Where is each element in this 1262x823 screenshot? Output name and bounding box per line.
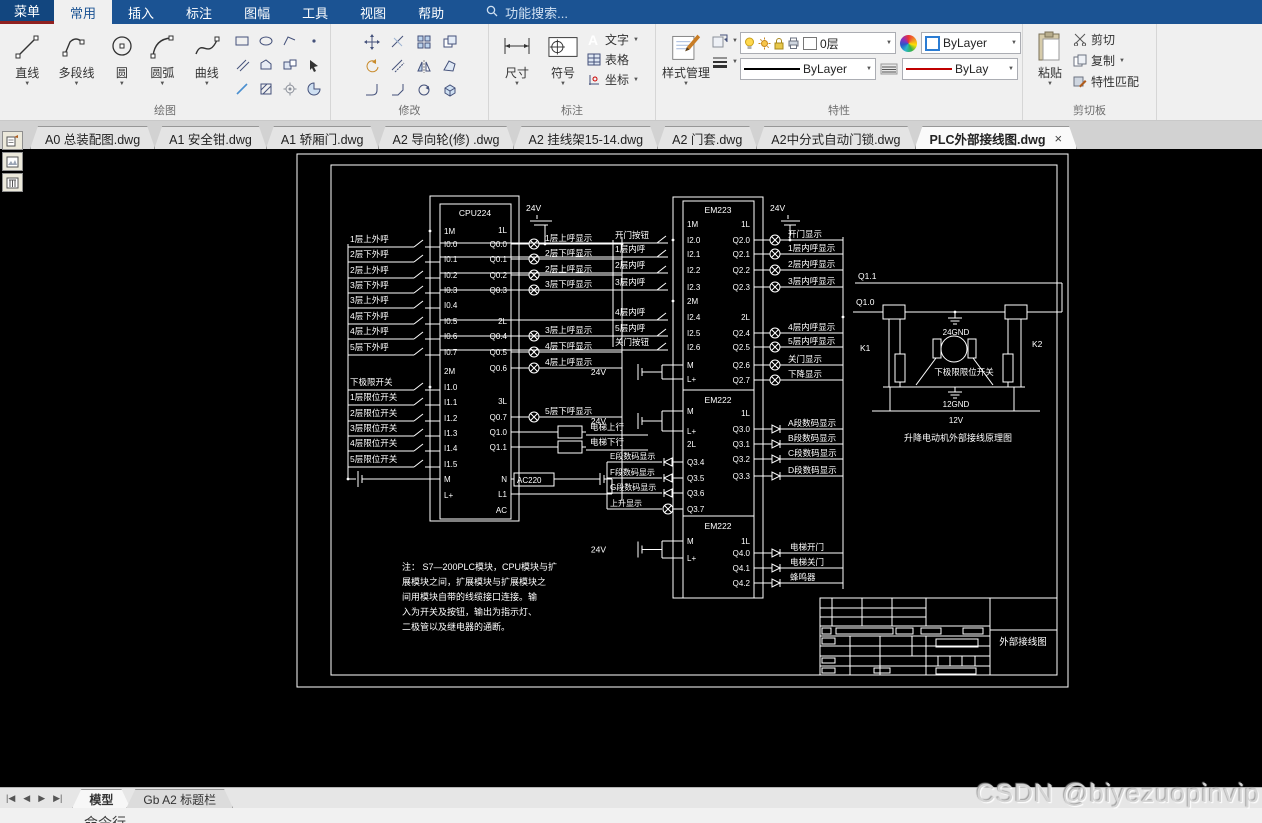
- layout-tab-bar: |◀ ◀ ▶ ▶| 模型Gb A2 标题栏: [0, 787, 1262, 808]
- chevron-down-icon: ▼: [732, 38, 738, 44]
- lock-icon: [774, 37, 784, 50]
- em-pin: 1L: [741, 537, 750, 546]
- paste-special-icon: [712, 34, 728, 48]
- layout-tab-0[interactable]: 模型: [72, 789, 130, 808]
- cpu-pin: I1.1: [444, 398, 458, 407]
- em-pin: Q2.3: [733, 283, 751, 292]
- linetype-select[interactable]: ByLayer ▼: [740, 58, 876, 80]
- motor-net-label: Q1.0: [856, 297, 875, 307]
- search-icon: [486, 5, 498, 20]
- output-label: 开门显示: [788, 229, 822, 239]
- draw-extra-tools: [230, 29, 326, 101]
- input-label: 4层内呼: [615, 307, 646, 317]
- cpu-block: [440, 204, 511, 519]
- copy-button[interactable]: 复制 ▼: [1073, 52, 1139, 69]
- em-pin: Q3.7: [687, 505, 705, 514]
- wire: [916, 358, 936, 385]
- junction-dot: [621, 243, 624, 246]
- input-label: 2层限位开关: [350, 408, 398, 418]
- ribbon-group-clipboard: 粘贴 ▼ 剪切 复制 ▼ 特性匹配: [1023, 24, 1157, 120]
- lineweight-preview: [906, 68, 952, 70]
- output-label: 5层下呼显示: [545, 406, 592, 416]
- tool-label: 特性匹配: [1091, 73, 1139, 90]
- box: [822, 668, 835, 673]
- chamfer-icon[interactable]: [389, 81, 407, 99]
- supply-label: 24V: [526, 203, 541, 213]
- output-label: G段数码显示: [610, 482, 656, 492]
- supply-label: 24V: [770, 203, 785, 213]
- symbol-icon: .1: [548, 30, 578, 64]
- command-line-label: 命令行: [84, 813, 126, 823]
- doc-tab-4[interactable]: A2 挂线架15-14.dwg: [513, 126, 658, 149]
- rotate-icon[interactable]: [363, 57, 381, 75]
- switch-icon: [414, 398, 423, 405]
- junction-dot: [429, 230, 432, 233]
- scissors-icon: [1073, 33, 1087, 46]
- diode-icon: [664, 474, 672, 482]
- color-value: ByLayer: [943, 36, 987, 50]
- layout-tab-1[interactable]: Gb A2 标题栏: [126, 789, 233, 808]
- pie-icon[interactable]: [305, 80, 323, 98]
- cpu-pin: I0.5: [444, 317, 458, 326]
- supply-label: 12V: [949, 416, 964, 425]
- block-icon[interactable]: [281, 56, 299, 74]
- sun-icon: [758, 37, 771, 50]
- filter-panel-icon[interactable]: [2, 173, 23, 192]
- output-label: 3层内呼显示: [788, 276, 835, 286]
- output-label: 上升显示: [610, 499, 642, 508]
- coordinate-tool[interactable]: 坐标 ▼: [587, 71, 639, 88]
- box: [822, 658, 835, 663]
- cpu-pin: M: [444, 475, 451, 484]
- chevron-down-icon: ▼: [73, 81, 79, 87]
- supply-label: 24V: [591, 545, 606, 555]
- drawing-canvas[interactable]: CPU2241MI0.0I0.1I0.2I0.3I0.4I0.5I0.6I0.7…: [0, 149, 1262, 787]
- cpu-pin: 2M: [444, 367, 455, 376]
- diode-icon: [772, 455, 780, 463]
- chevron-down-icon: ▼: [866, 66, 872, 72]
- chevron-down-icon: ▼: [633, 77, 639, 83]
- first-layout-icon[interactable]: |◀: [6, 793, 15, 804]
- trim-icon[interactable]: [389, 33, 407, 51]
- rectangle-icon[interactable]: [233, 32, 251, 50]
- doc-tab-3[interactable]: A2 导向轮(修) .dwg: [378, 126, 515, 149]
- em-pin: 2L: [687, 440, 696, 449]
- close-icon[interactable]: ×: [1054, 131, 1062, 146]
- switch-icon: [414, 271, 423, 278]
- group-label-properties: 特性: [656, 104, 1022, 120]
- layout-nav-arrows: |◀ ◀ ▶ ▶|: [6, 793, 62, 804]
- output-label: 电梯开门: [790, 542, 824, 552]
- cpu-pin: L1: [498, 490, 507, 499]
- layer-color-swatch: [803, 37, 817, 50]
- ribbon-spacer: [1157, 24, 1262, 120]
- cut-button[interactable]: 剪切: [1073, 31, 1139, 48]
- output-label: 3层下呼显示: [545, 279, 592, 289]
- box-3d-icon[interactable]: [441, 81, 459, 99]
- menu-item-2[interactable]: 插入: [112, 0, 170, 24]
- arc-tool-button[interactable]: 圆弧 ▼: [141, 28, 183, 87]
- tool-label: 样式管理: [662, 64, 710, 81]
- cpu-pin: I1.0: [444, 383, 458, 392]
- cpu-pin: I0.2: [444, 271, 458, 280]
- note-line: 入为开关及按钮，输出为指示灯、: [402, 606, 537, 617]
- color-select[interactable]: ByLayer ▼: [921, 32, 1021, 54]
- array-icon[interactable]: [415, 33, 433, 51]
- em222b-title: EM222: [705, 521, 732, 531]
- input-label: 2层下外呼: [350, 249, 389, 259]
- tool-label: 符号: [551, 64, 575, 81]
- em-pin: Q2.2: [733, 266, 751, 275]
- diode-icon: [772, 549, 780, 557]
- plc-wiring-schematic: CPU2241MI0.0I0.1I0.2I0.3I0.4I0.5I0.6I0.7…: [0, 149, 1262, 787]
- polyline-tool-button[interactable]: 多段线 ▼: [50, 28, 102, 87]
- doc-tab-6[interactable]: A2中分式自动门锁.dwg: [756, 126, 915, 149]
- relay-label: K2: [1032, 339, 1043, 349]
- switch-icon: [657, 283, 666, 290]
- chevron-down-icon: ▼: [514, 81, 520, 87]
- output-label: D段数码显示: [788, 465, 837, 475]
- chevron-down-icon: ▼: [1008, 66, 1014, 72]
- relay-coil: [558, 441, 582, 453]
- output-label: 1层上呼显示: [545, 233, 592, 243]
- polygon-icon[interactable]: [281, 32, 299, 50]
- input-label: 2层上外呼: [350, 265, 389, 275]
- doc-tab-5[interactable]: A2 门套.dwg: [657, 126, 757, 149]
- hatch-lines-icon[interactable]: [880, 62, 898, 76]
- chevron-down-icon: ▼: [159, 81, 165, 87]
- chevron-down-icon: ▼: [204, 81, 210, 87]
- gear-icon[interactable]: [281, 80, 299, 98]
- output-label: 下降显示: [788, 369, 822, 379]
- diode-icon: [772, 425, 780, 433]
- em-pin: I2.5: [687, 329, 701, 338]
- junction-dot: [672, 300, 675, 303]
- chevron-down-icon: ▼: [119, 81, 125, 87]
- cpu-pin: I0.4: [444, 301, 458, 310]
- em-pin: Q2.1: [733, 250, 751, 259]
- input-label: 5层内呼: [615, 323, 646, 333]
- ac-label: AC220: [517, 476, 542, 485]
- diode-icon: [664, 458, 672, 466]
- mirror-icon[interactable]: [415, 57, 433, 75]
- lineweight-select[interactable]: ByLay ▼: [902, 58, 1018, 80]
- dimension-icon: [502, 30, 532, 64]
- cpu-pin: I1.3: [444, 429, 458, 438]
- input-label: 3层下外呼: [350, 280, 389, 290]
- em-pin: Q2.6: [733, 361, 751, 370]
- circle-icon: [107, 30, 137, 64]
- menu-item-6[interactable]: 视图: [344, 0, 402, 24]
- chevron-down-icon: ▼: [886, 40, 892, 46]
- switch-icon: [657, 266, 666, 273]
- em-pin: Q3.1: [733, 440, 751, 449]
- switch-icon: [414, 429, 423, 436]
- switch-icon: [657, 250, 666, 257]
- side-panel-icons: [2, 131, 23, 192]
- symbol-button[interactable]: .1 符号 ▼: [541, 28, 585, 87]
- group-label-modify: 修改: [331, 104, 488, 120]
- stretch-icon[interactable]: [441, 57, 459, 75]
- relay-coil: [558, 426, 582, 438]
- em-pin: Q4.0: [733, 549, 751, 558]
- svg-text:A: A: [588, 33, 598, 46]
- clipboard-icon: [1035, 30, 1065, 64]
- tool-label: 直线: [15, 64, 39, 81]
- doc-tab-1[interactable]: A1 安全钳.dwg: [154, 126, 267, 149]
- style-manager-icon: [671, 30, 701, 64]
- diode-icon: [772, 564, 780, 572]
- insert-attrib-button[interactable]: ▼: [712, 34, 738, 48]
- input-label: 1层限位开关: [350, 392, 398, 402]
- diode-icon: [772, 579, 780, 587]
- em-pin: Q3.5: [687, 474, 705, 483]
- output-label: E段数码显示: [610, 451, 655, 461]
- tool-label: 剪切: [1091, 31, 1115, 48]
- input-label: 3层内呼: [615, 277, 646, 287]
- doc-tab-7[interactable]: PLC外部接线图.dwg×: [915, 126, 1078, 149]
- cpu-pin: Q0.2: [490, 271, 508, 280]
- color-swatch: [925, 36, 940, 51]
- menu-item-3[interactable]: 标注: [170, 0, 228, 24]
- cpu-pin: I1.2: [444, 414, 458, 423]
- menu-item-1[interactable]: 常用: [54, 0, 112, 24]
- em-pin: Q3.6: [687, 489, 705, 498]
- move-icon[interactable]: [363, 33, 381, 51]
- em-pin: M: [687, 361, 694, 370]
- diode-icon: [772, 472, 780, 480]
- cpu-pin: I0.7: [444, 348, 458, 357]
- brush-contact: [968, 339, 976, 358]
- table-icon: [587, 53, 601, 66]
- output-label: 关门显示: [788, 354, 822, 364]
- tool-label: 尺寸: [505, 64, 529, 81]
- em-pin: I2.3: [687, 283, 701, 292]
- contact-bar: [1003, 354, 1013, 382]
- cpu-pin: AC: [496, 506, 507, 515]
- line-icon: [12, 30, 42, 64]
- input-label: 2层内呼: [615, 260, 646, 270]
- linetype-value: ByLayer: [803, 62, 847, 76]
- doc-tab-2[interactable]: A1 轿厢门.dwg: [266, 126, 379, 149]
- arc-icon: [147, 30, 177, 64]
- fillet-icon[interactable]: [363, 81, 381, 99]
- cpu-title: CPU224: [459, 208, 491, 218]
- cpu-pin: Q0.1: [490, 255, 508, 264]
- relay-coil: [1005, 305, 1027, 319]
- brush-contact: [933, 339, 941, 358]
- junction-dot: [429, 386, 432, 389]
- em-pin: M: [687, 537, 694, 546]
- layout-tabs: 模型Gb A2 标题栏: [72, 788, 229, 808]
- dimension-button[interactable]: 尺寸 ▼: [495, 28, 539, 87]
- note-line: 二极管以及继电器的通断。: [402, 621, 510, 632]
- switch-icon: [657, 343, 666, 350]
- region-icon[interactable]: [257, 56, 275, 74]
- application-window: 菜单常用插入标注图幅工具视图帮助 功能搜索... 直线 ▼: [0, 0, 1262, 821]
- em-pin: I2.0: [687, 236, 701, 245]
- em223-title: EM223: [705, 205, 732, 215]
- sketch-line-icon[interactable]: [233, 80, 251, 98]
- ribbon-group-modify: 修改: [331, 24, 489, 120]
- em-pin: Q3.0: [733, 425, 751, 434]
- ribbon-group-draw: 直线 ▼ 多段线 ▼ 圆 ▼: [0, 24, 331, 120]
- tool-label: 表格: [605, 51, 629, 68]
- menu-item-4[interactable]: 图幅: [228, 0, 286, 24]
- input-label: 3层上外呼: [350, 295, 389, 305]
- prev-layout-icon[interactable]: ◀: [23, 793, 30, 804]
- relay-coil: [883, 305, 905, 319]
- cpu-pin: I1.4: [444, 444, 458, 453]
- cpu-pin: I0.0: [444, 240, 458, 249]
- input-label: 1层上外呼: [350, 234, 389, 244]
- em-pin: 2L: [741, 313, 750, 322]
- image-panel-icon[interactable]: [2, 152, 23, 171]
- ground-label: 12GND: [943, 400, 970, 409]
- em-pin: 2M: [687, 297, 698, 306]
- switch-icon: [414, 444, 423, 451]
- box: [921, 628, 941, 634]
- input-label: 5层下外呼: [350, 342, 389, 352]
- menu-bar: 菜单常用插入标注图幅工具视图帮助 功能搜索...: [0, 0, 1262, 24]
- lines-icon: [712, 56, 728, 68]
- color-wheel-icon[interactable]: [900, 35, 917, 52]
- box: [874, 668, 890, 673]
- chevron-down-icon: ▼: [1047, 81, 1053, 87]
- last-layout-icon[interactable]: ▶|: [53, 793, 62, 804]
- ellipse-icon[interactable]: [257, 32, 275, 50]
- circle-tool-button[interactable]: 圆 ▼: [104, 28, 139, 87]
- search-placeholder: 功能搜索...: [505, 3, 568, 22]
- match-properties-button[interactable]: 特性匹配: [1073, 73, 1139, 90]
- tool-label: 粘贴: [1038, 64, 1062, 81]
- linetype-preview: [744, 68, 800, 70]
- output-label: C段数码显示: [788, 448, 837, 458]
- switch-icon: [414, 255, 423, 262]
- cpu-pin: Q0.0: [490, 240, 508, 249]
- box: [936, 668, 976, 674]
- input-label: 开门按钮: [615, 230, 650, 240]
- chevron-down-icon: ▼: [24, 81, 30, 87]
- spline-tool-button[interactable]: 曲线 ▼: [186, 28, 228, 87]
- relay-label: K1: [860, 343, 871, 353]
- menu-item-5[interactable]: 工具: [286, 0, 344, 24]
- em-pin: Q3.2: [733, 455, 751, 464]
- output-label: 5层内呼显示: [788, 336, 835, 346]
- note-line: 间用模块自带的线缆接口连接。输: [402, 591, 537, 602]
- group-label-annotate: 标注: [489, 104, 655, 120]
- motor-icon: [941, 336, 967, 362]
- lineweight-menu-button[interactable]: ▼: [712, 56, 738, 68]
- switch-icon: [414, 240, 423, 247]
- menu-item-0[interactable]: 菜单: [0, 0, 54, 24]
- supply-label: 24V: [591, 367, 606, 377]
- chevron-down-icon: ▼: [560, 81, 566, 87]
- cpu-pin: L+: [444, 491, 453, 500]
- cpu-pin: Q0.5: [490, 348, 508, 357]
- next-layout-icon[interactable]: ▶: [38, 793, 45, 804]
- em-pin: L+: [687, 375, 696, 384]
- coordinate-icon: [587, 73, 601, 86]
- search-box[interactable]: 功能搜索...: [486, 0, 568, 24]
- output-label: A段数码显示: [788, 418, 836, 428]
- output-label: 蜂鸣器: [790, 572, 816, 582]
- switch-icon: [657, 313, 666, 320]
- group-label-clipboard: 剪切板: [1023, 104, 1156, 120]
- style-manager-button[interactable]: 样式管理 ▼: [662, 28, 710, 87]
- arrow-cursor-icon[interactable]: [305, 56, 323, 74]
- cpu-pin: 3L: [498, 397, 507, 406]
- cpu-pin: 2L: [498, 317, 507, 326]
- ground-label: 24GND: [943, 328, 970, 337]
- switch-icon: [657, 236, 666, 243]
- input-label: 5层限位开关: [350, 454, 398, 464]
- line-tool-button[interactable]: 直线 ▼: [6, 28, 48, 87]
- paste-button[interactable]: 粘贴 ▼: [1029, 28, 1071, 87]
- input-label: 关门按钮: [615, 337, 650, 347]
- em-pin: I2.6: [687, 343, 701, 352]
- em222a-title: EM222: [705, 395, 732, 405]
- doc-tab-0[interactable]: A0 总装配图.dwg: [30, 126, 155, 149]
- chevron-down-icon: ▼: [633, 37, 639, 43]
- menu-items: 菜单常用插入标注图幅工具视图帮助: [0, 0, 460, 24]
- em-pin: Q2.4: [733, 329, 751, 338]
- table-tool[interactable]: 表格: [587, 51, 639, 68]
- box: [963, 628, 983, 634]
- tool-label: 圆: [116, 64, 128, 81]
- cpu-pin: 1L: [498, 226, 507, 235]
- text-tool[interactable]: A 文字 ▼: [587, 31, 639, 48]
- motor-caption: 升降电动机外部接线原理图: [904, 432, 1012, 443]
- input-label: 4层上外呼: [350, 326, 389, 336]
- properties-panel-icon[interactable]: [2, 131, 23, 150]
- chevron-down-icon: ▼: [1011, 40, 1017, 46]
- diode-icon: [664, 489, 672, 497]
- menu-item-7[interactable]: 帮助: [402, 0, 460, 24]
- em-pin: Q3.3: [733, 472, 751, 481]
- em-pin: L+: [687, 554, 696, 563]
- note-line: 展模块之间，扩展模块与扩展模块之: [402, 576, 546, 587]
- printer-icon: [787, 37, 800, 49]
- rotate-circle-icon[interactable]: [415, 81, 433, 99]
- document-tab-bar: A0 总装配图.dwgA1 安全钳.dwgA1 轿厢门.dwgA2 导向轮(修)…: [0, 121, 1262, 149]
- cpu-pin: Q0.7: [490, 413, 508, 422]
- diode-icon: [772, 440, 780, 448]
- layer-select[interactable]: 0层 ▼: [740, 32, 896, 54]
- output-label: 1层内呼显示: [788, 243, 835, 253]
- box: [836, 628, 893, 634]
- ribbon-group-annotate: 尺寸 ▼ .1 符号 ▼ A 文字 ▼: [489, 24, 656, 120]
- switch-icon: [414, 414, 423, 421]
- em-pin: 1M: [687, 220, 698, 229]
- parallel-lines-icon[interactable]: [233, 56, 251, 74]
- tool-label: 文字: [605, 31, 629, 48]
- em-pin: Q3.4: [687, 458, 705, 467]
- copy-icon: [1073, 54, 1087, 67]
- cpu-pin: I0.1: [444, 255, 458, 264]
- hatch-icon[interactable]: [257, 80, 275, 98]
- point-icon[interactable]: [305, 32, 323, 50]
- em-pin: Q2.7: [733, 376, 751, 385]
- title-block-name: 外部接线图: [999, 636, 1047, 648]
- text-icon: A: [587, 33, 601, 46]
- copy-object-icon[interactable]: [441, 33, 459, 51]
- cpu-pin: Q0.6: [490, 364, 508, 373]
- group-label-draw: 绘图: [0, 104, 330, 120]
- offset-icon[interactable]: [389, 57, 407, 75]
- em-pin: Q2.5: [733, 343, 751, 352]
- em-pin: I2.2: [687, 266, 701, 275]
